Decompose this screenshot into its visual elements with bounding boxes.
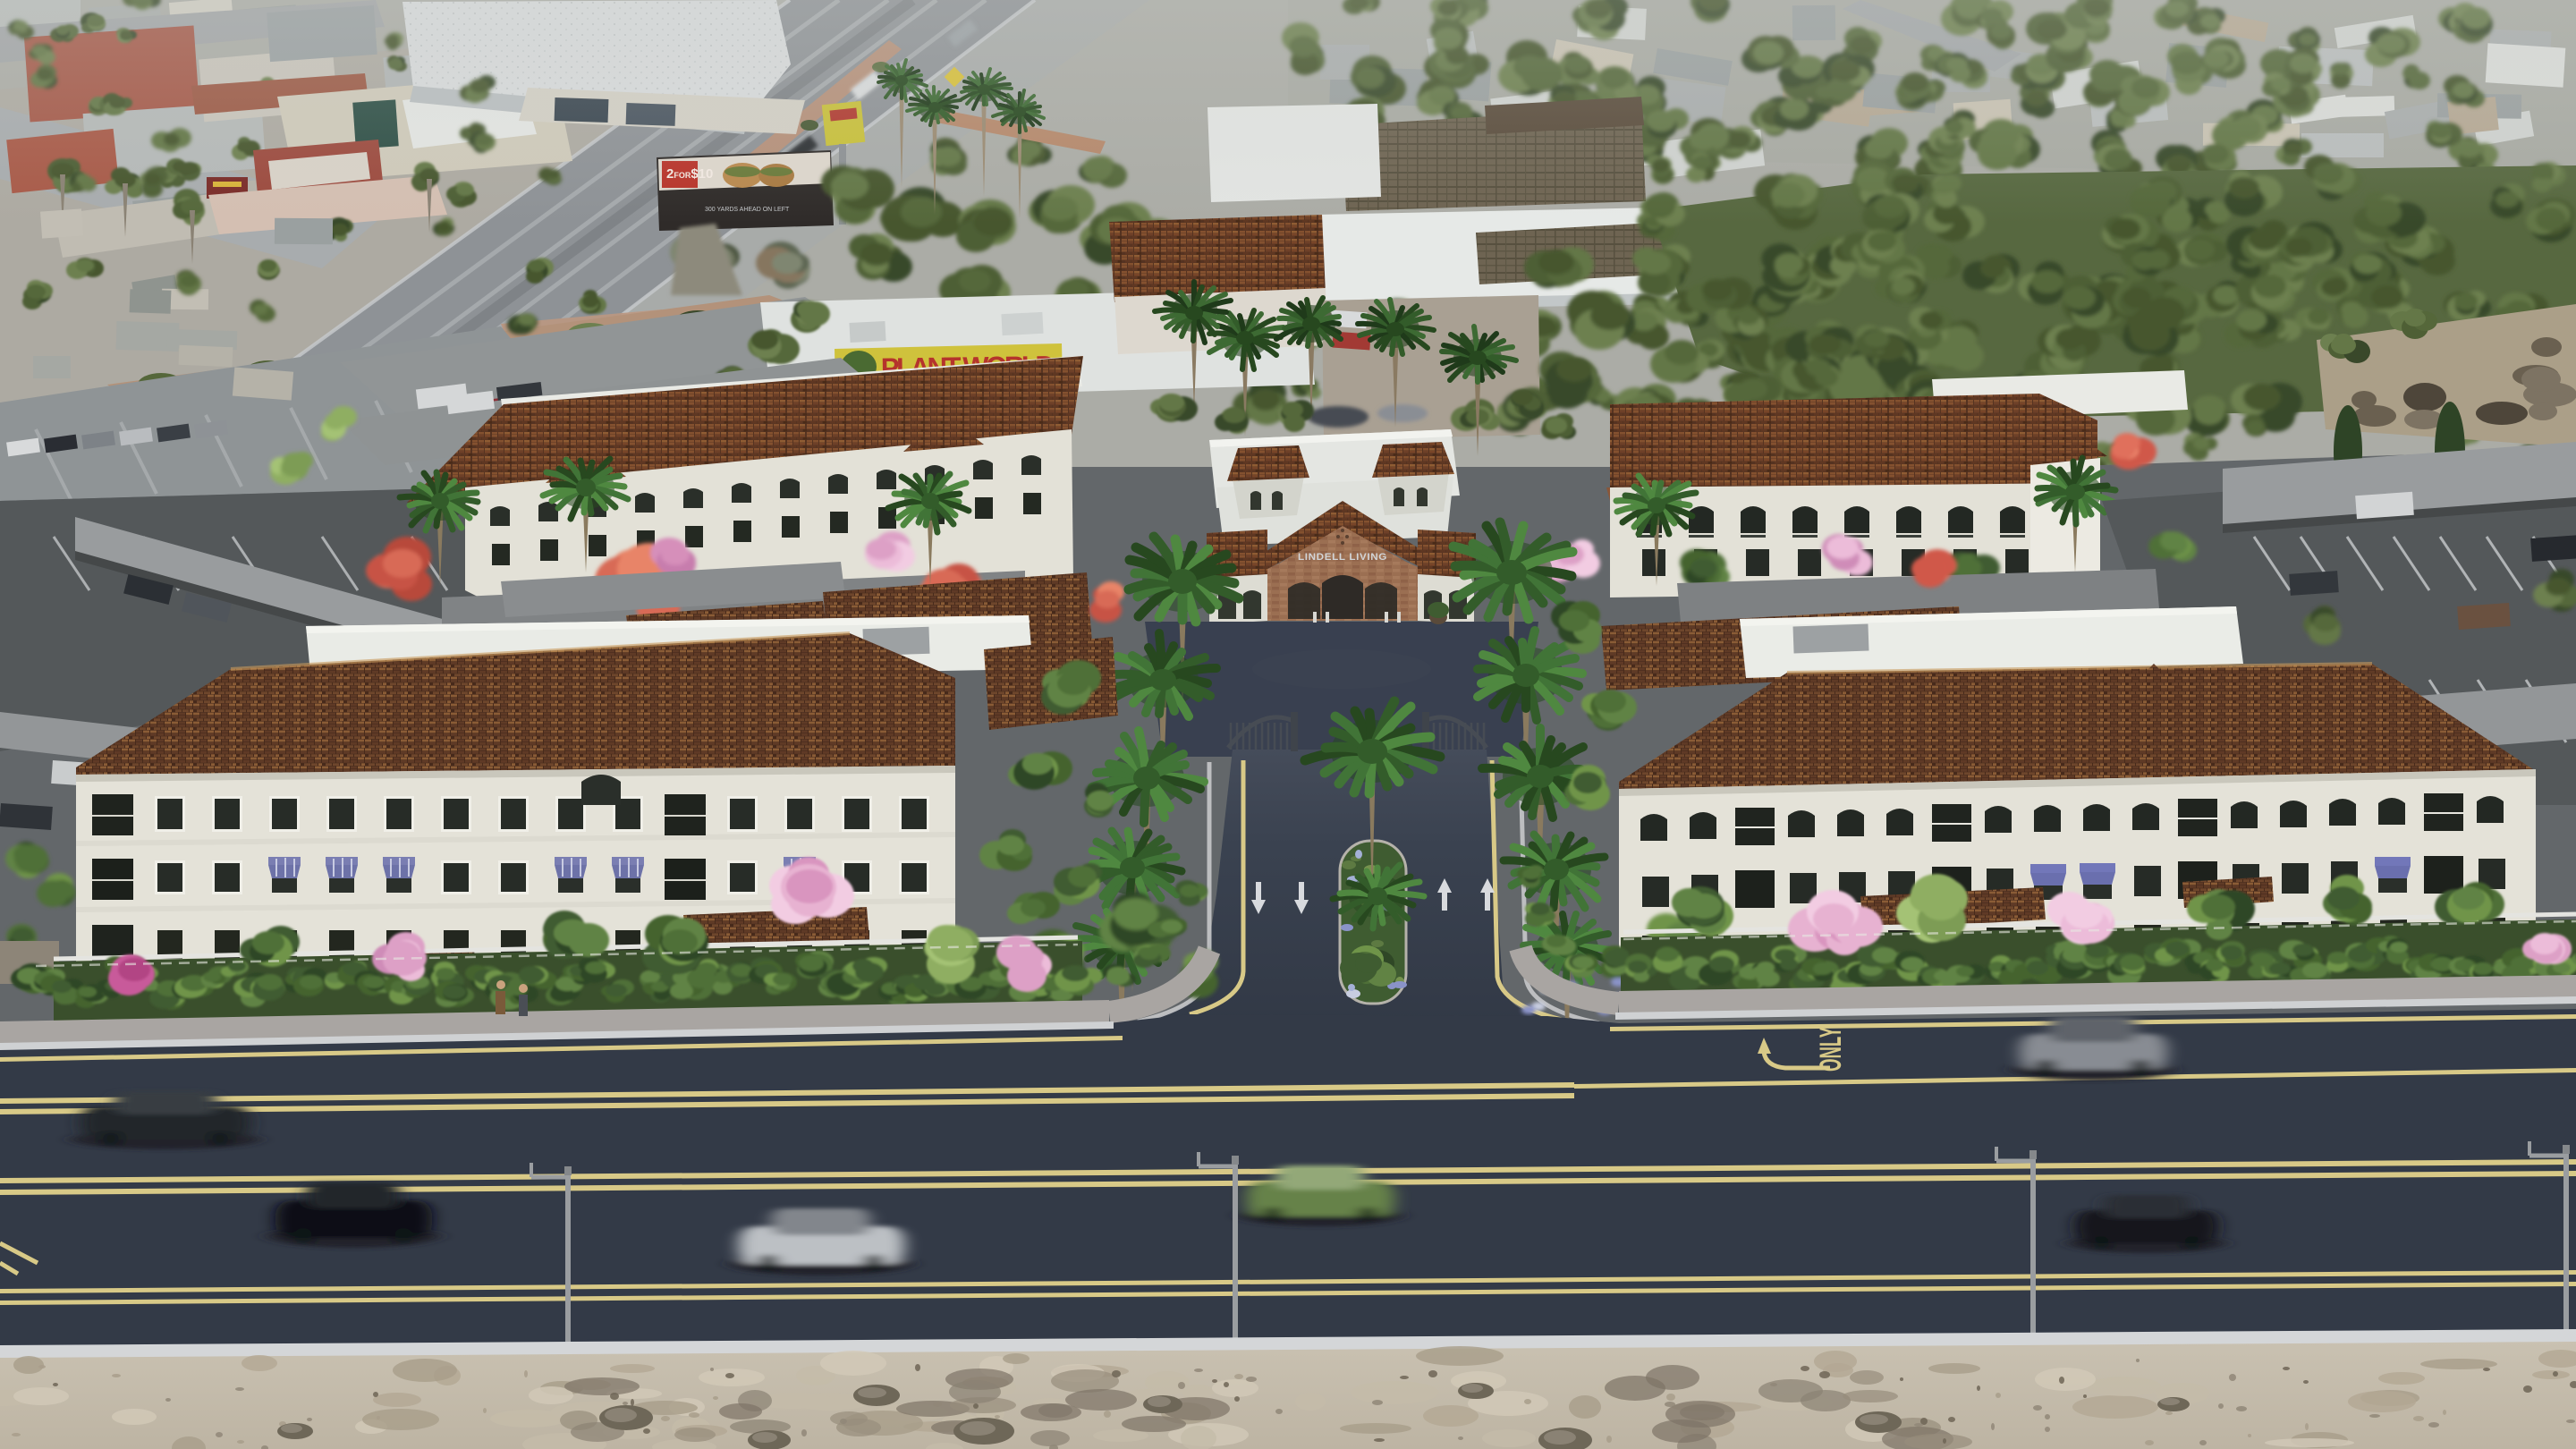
svg-text:ONLY: ONLY — [1814, 1027, 1848, 1072]
svg-text:LINDELL LIVING: LINDELL LIVING — [1298, 552, 1387, 563]
